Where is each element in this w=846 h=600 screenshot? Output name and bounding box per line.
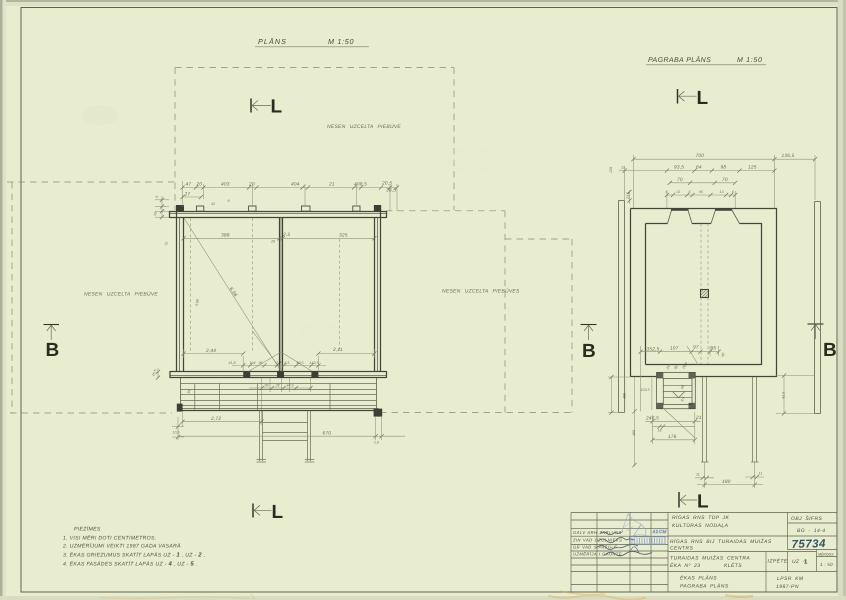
- svg-text:21: 21: [328, 182, 335, 188]
- svg-text:2,44: 2,44: [205, 348, 216, 354]
- svg-text:L: L: [697, 492, 709, 513]
- svg-text:3. ĒKAS GRIEZUMUS SKATĪT LA: 3. ĒKAS GRIEZUMUS SKATĪT LAPĀS UZ - 1 , …: [63, 552, 205, 559]
- svg-text:21: 21: [695, 415, 702, 421]
- svg-text:13: 13: [676, 190, 680, 194]
- svg-text:103,5: 103,5: [641, 388, 650, 392]
- svg-text:2,5: 2,5: [373, 441, 379, 445]
- svg-text:TURAIDAS MUIŽAS CENTRA: TURAIDAS MUIŽAS CENTRA: [670, 555, 750, 562]
- svg-text:NESEN UZCELTA PIEBŪVE: NESEN UZCELTA PIEBŪVE: [84, 291, 158, 298]
- svg-text:4. ĒKAS FASĀDES SKATĪT LAPĀ: 4. ĒKAS FASĀDES SKATĪT LAPĀS UZ - 4 , UZ…: [63, 561, 197, 568]
- svg-text:UZ -: UZ -: [792, 559, 805, 565]
- svg-text:PIEZĪMES: PIEZĪMES: [74, 526, 101, 533]
- svg-text:OBJ ŠIFRS: OBJ ŠIFRS: [791, 515, 823, 522]
- svg-text:ĒKA Nº 23: ĒKA Nº 23: [670, 562, 700, 569]
- svg-text:L: L: [272, 502, 284, 523]
- svg-text:408: 408: [623, 393, 627, 399]
- svg-text:42,5: 42,5: [782, 392, 786, 399]
- svg-text:352,5: 352,5: [647, 347, 660, 353]
- svg-text:70: 70: [677, 177, 683, 183]
- svg-text:10,5: 10,5: [173, 431, 180, 435]
- svg-text:136,5: 136,5: [782, 153, 795, 159]
- svg-text:176: 176: [668, 434, 677, 440]
- svg-text:13: 13: [720, 190, 724, 194]
- svg-text:1 : 50: 1 : 50: [820, 562, 833, 567]
- svg-text:70: 70: [722, 177, 728, 183]
- svg-text:325: 325: [339, 233, 348, 239]
- svg-text:LPSR KM: LPSR KM: [777, 576, 804, 582]
- svg-text:246,5: 246,5: [645, 416, 659, 422]
- svg-text:96: 96: [259, 361, 263, 365]
- svg-text:93,5: 93,5: [297, 361, 304, 365]
- svg-text:403: 403: [221, 182, 230, 188]
- svg-text:6: 6: [666, 190, 668, 194]
- svg-text:12: 12: [621, 166, 625, 170]
- svg-text:2. UZMĒRĪJUMI VEIKTI 1987 GA: 2. UZMĒRĪJUMI VEIKTI 1987 GADA VASARĀ: [62, 543, 181, 550]
- svg-text:143,5: 143,5: [310, 361, 319, 365]
- svg-text:670: 670: [323, 430, 332, 436]
- svg-text:97: 97: [693, 344, 699, 350]
- svg-text:44,5: 44,5: [287, 383, 294, 387]
- svg-text:20: 20: [248, 182, 255, 188]
- svg-text:6: 6: [689, 190, 691, 194]
- svg-text:27: 27: [184, 192, 191, 198]
- svg-text:PLĀNS: PLĀNS: [258, 37, 287, 46]
- svg-text:120: 120: [609, 167, 613, 173]
- svg-text:BG - 14-4: BG - 14-4: [797, 528, 826, 534]
- svg-text:93,5: 93,5: [674, 165, 684, 171]
- svg-text:180: 180: [722, 479, 731, 485]
- svg-text:18: 18: [658, 429, 662, 433]
- svg-text:RĪGAS RNS BIJ TURAIDAS MUIŽA: RĪGAS RNS BIJ TURAIDAS MUIŽAS: [670, 538, 772, 545]
- svg-text:RĪGAS RNS TDP JK: RĪGAS RNS TDP JK: [672, 514, 730, 521]
- svg-text:PAGRABA PLĀNS: PAGRABA PLĀNS: [648, 56, 711, 64]
- svg-text:MĒROGS: MĒROGS: [818, 553, 834, 557]
- svg-text:M 1:50: M 1:50: [328, 37, 354, 46]
- svg-text:28: 28: [270, 240, 275, 244]
- svg-text:28: 28: [275, 383, 280, 387]
- svg-text:38,5: 38,5: [386, 188, 396, 194]
- svg-text:GR VAD S.PAEGLE: GR VAD S.PAEGLE: [573, 545, 617, 550]
- svg-text:700: 700: [696, 153, 705, 159]
- svg-text:6: 6: [732, 190, 734, 194]
- svg-text:96: 96: [699, 190, 703, 194]
- svg-text:2,11: 2,11: [332, 347, 343, 353]
- svg-text:20,5: 20,5: [381, 181, 392, 187]
- svg-text:125: 125: [748, 165, 757, 171]
- svg-text:41CM: 41CM: [653, 529, 667, 534]
- svg-text:ĒKAS PLĀNS: ĒKAS PLĀNS: [680, 575, 717, 582]
- svg-text:75734: 75734: [791, 538, 826, 551]
- svg-text:PAGRABA PLĀNS: PAGRABA PLĀNS: [680, 583, 729, 590]
- svg-text:NESEN UZCELTA PIEBŪVES: NESEN UZCELTA PIEBŪVES: [442, 288, 520, 295]
- svg-text:UZMĒRĪJA I.GAUNTE: UZMĒRĪJA I.GAUNTE: [573, 552, 622, 557]
- svg-text:B: B: [582, 341, 596, 362]
- svg-text:95: 95: [265, 383, 269, 387]
- svg-text:23,5: 23,5: [626, 192, 630, 200]
- svg-text:GALV ARH ZABLUNS: GALV ARH ZABLUNS: [573, 530, 622, 535]
- svg-text:47: 47: [186, 182, 192, 188]
- svg-text:95: 95: [711, 346, 717, 352]
- svg-text:64: 64: [696, 165, 702, 171]
- svg-text:11: 11: [696, 473, 700, 477]
- svg-text:M 1:50: M 1:50: [737, 57, 763, 64]
- svg-text:1. VISI MĒRI DOTI CENTIMETROS: 1. VISI MĒRI DOTI CENTIMETROS.: [63, 535, 156, 542]
- svg-text:480: 480: [632, 430, 636, 436]
- svg-text:NESEN UZCELTA PIEBŪVE: NESEN UZCELTA PIEBŪVE: [327, 123, 401, 130]
- svg-text:98: 98: [721, 165, 727, 171]
- svg-text:408,5: 408,5: [354, 182, 367, 188]
- svg-text:L: L: [271, 97, 283, 118]
- svg-text:KLĒTS: KLĒTS: [724, 562, 742, 569]
- svg-text:CENTRS: CENTRS: [670, 546, 693, 552]
- svg-text:404: 404: [291, 182, 300, 188]
- svg-text:107: 107: [670, 346, 679, 352]
- svg-text:2,72: 2,72: [210, 416, 221, 422]
- svg-text:KULTŪRAS NODAĻA: KULTŪRAS NODAĻA: [672, 522, 729, 529]
- svg-text:L: L: [697, 88, 709, 109]
- svg-text:B: B: [823, 340, 837, 361]
- svg-text:IZPĒTE: IZPĒTE: [768, 558, 788, 565]
- svg-text:388: 388: [221, 233, 230, 239]
- svg-text:ZIN VAD OZOLNIEKS: ZIN VAD OZOLNIEKS: [572, 538, 622, 543]
- svg-text:1987-PN: 1987-PN: [776, 584, 799, 590]
- svg-text:104: 104: [250, 361, 256, 365]
- svg-text:41: 41: [211, 202, 215, 206]
- svg-text:2,5: 2,5: [282, 232, 290, 238]
- svg-text:11: 11: [759, 472, 763, 476]
- svg-text:B: B: [46, 340, 60, 361]
- svg-text:1,4: 1,4: [276, 360, 281, 364]
- svg-text:41,8: 41,8: [229, 361, 236, 365]
- svg-text:6,5: 6,5: [285, 361, 290, 365]
- svg-text:20: 20: [196, 182, 203, 188]
- svg-text:9: 9: [228, 199, 230, 203]
